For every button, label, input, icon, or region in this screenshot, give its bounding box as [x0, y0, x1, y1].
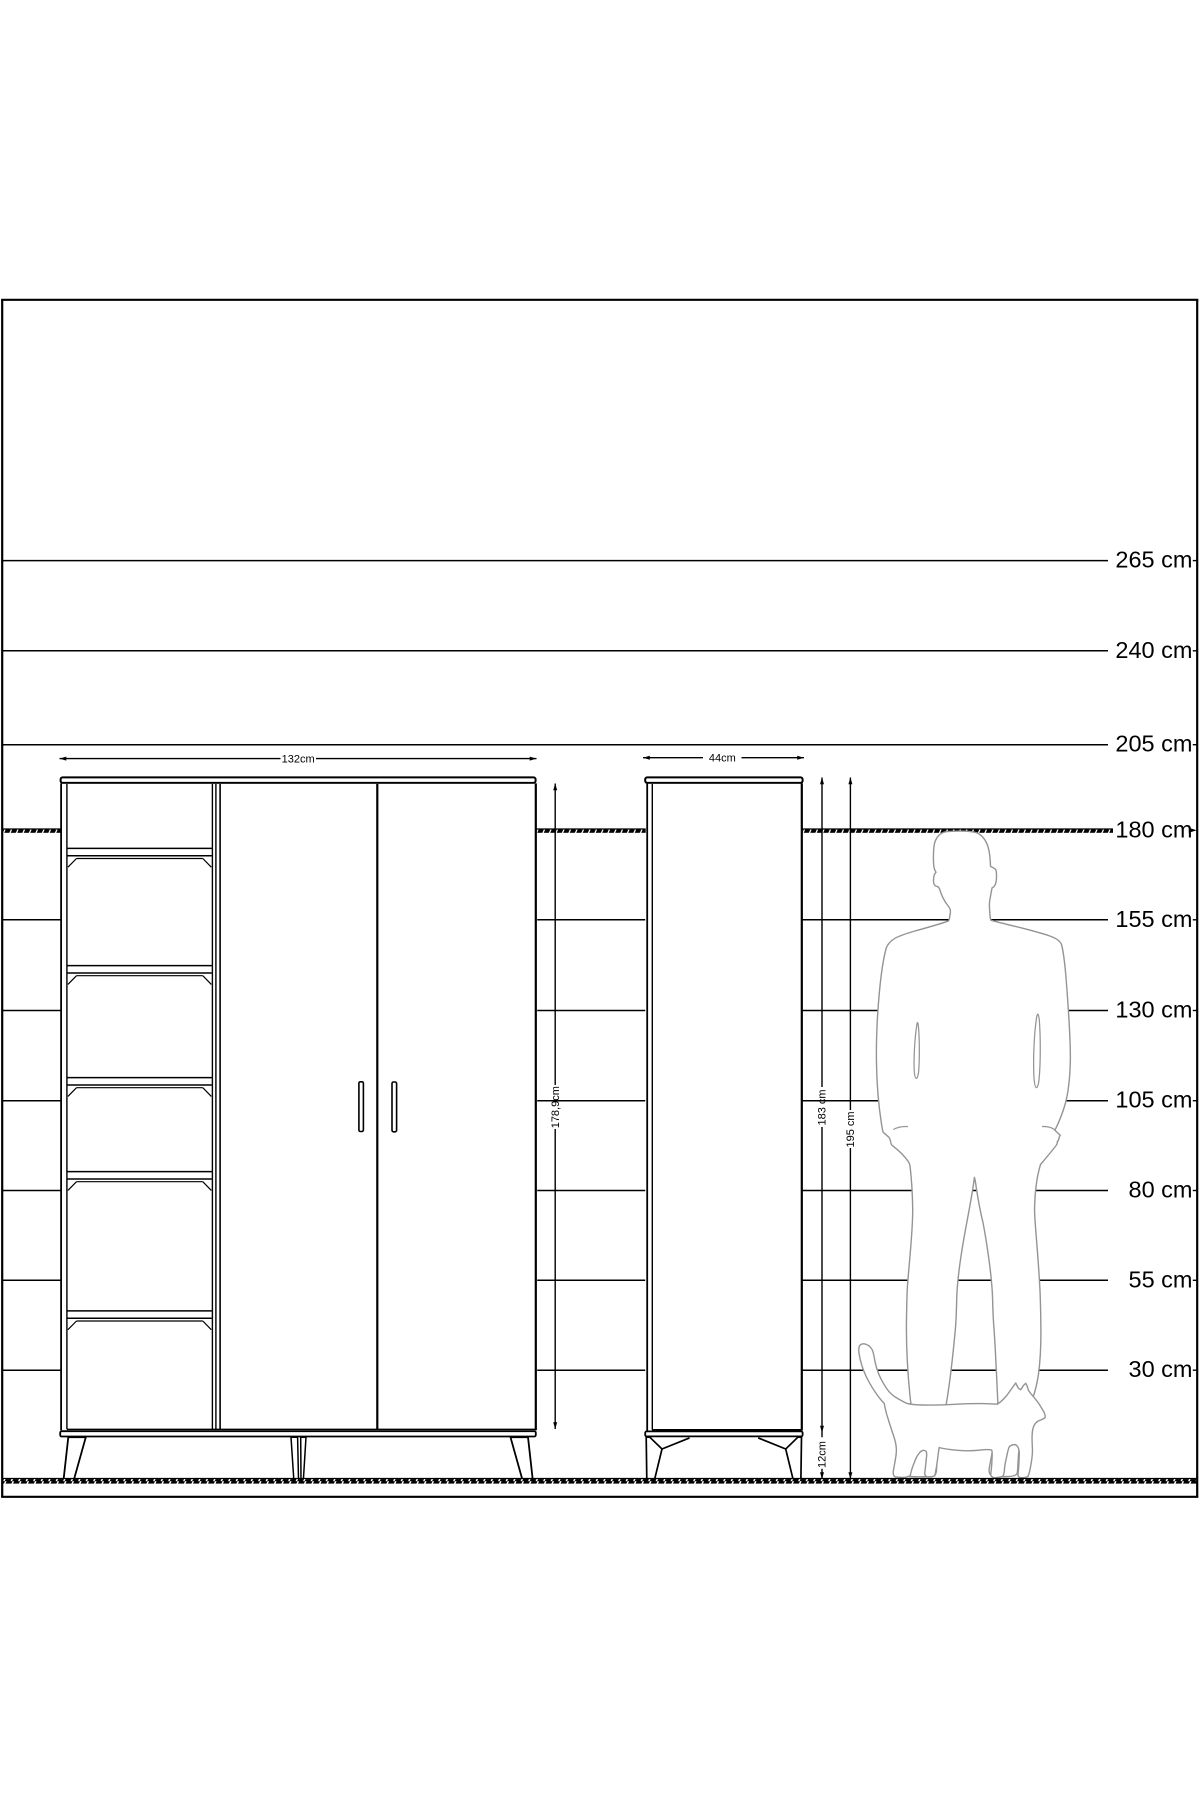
svg-text:44cm: 44cm	[709, 752, 736, 764]
svg-text:130 cm: 130 cm	[1115, 997, 1192, 1023]
svg-text:265 cm: 265 cm	[1115, 547, 1192, 573]
svg-text:195 cm: 195 cm	[845, 1111, 857, 1147]
svg-text:155 cm: 155 cm	[1115, 906, 1192, 932]
svg-text:205 cm: 205 cm	[1115, 731, 1192, 757]
svg-text:132cm: 132cm	[282, 753, 315, 765]
svg-text:55 cm: 55 cm	[1129, 1266, 1193, 1292]
svg-text:105 cm: 105 cm	[1115, 1087, 1192, 1113]
svg-text:12cm: 12cm	[817, 1441, 829, 1468]
svg-text:180 cm: 180 cm	[1115, 816, 1192, 842]
svg-text:30 cm: 30 cm	[1129, 1356, 1193, 1382]
svg-text:240 cm: 240 cm	[1115, 637, 1192, 663]
svg-text:80 cm: 80 cm	[1129, 1177, 1193, 1203]
svg-text:178,9cm: 178,9cm	[550, 1086, 562, 1128]
svg-text:183 cm: 183 cm	[817, 1089, 829, 1125]
